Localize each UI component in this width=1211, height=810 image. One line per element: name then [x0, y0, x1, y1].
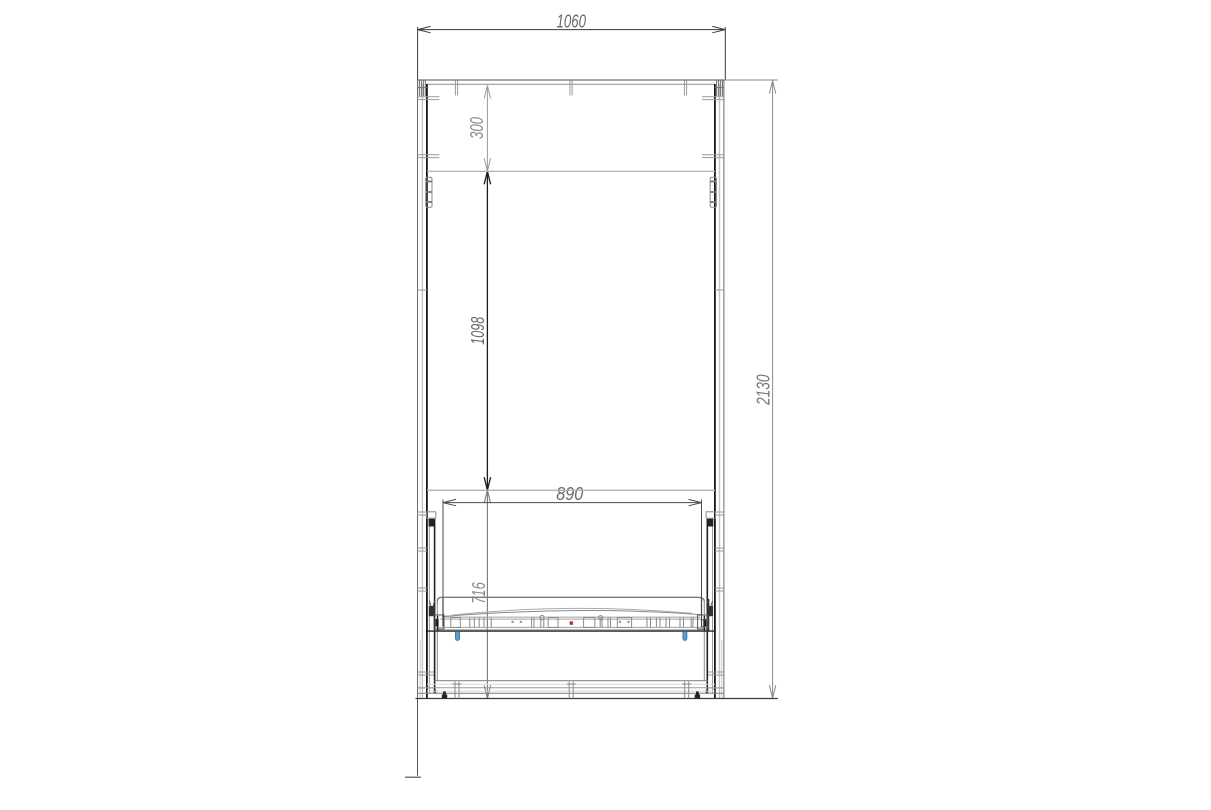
svg-text:716: 716: [469, 582, 489, 604]
svg-text:1098: 1098: [468, 317, 488, 345]
svg-text:890: 890: [556, 484, 583, 504]
svg-text:1060: 1060: [556, 11, 586, 31]
svg-text:300: 300: [467, 117, 487, 139]
svg-text:2130: 2130: [754, 374, 774, 405]
